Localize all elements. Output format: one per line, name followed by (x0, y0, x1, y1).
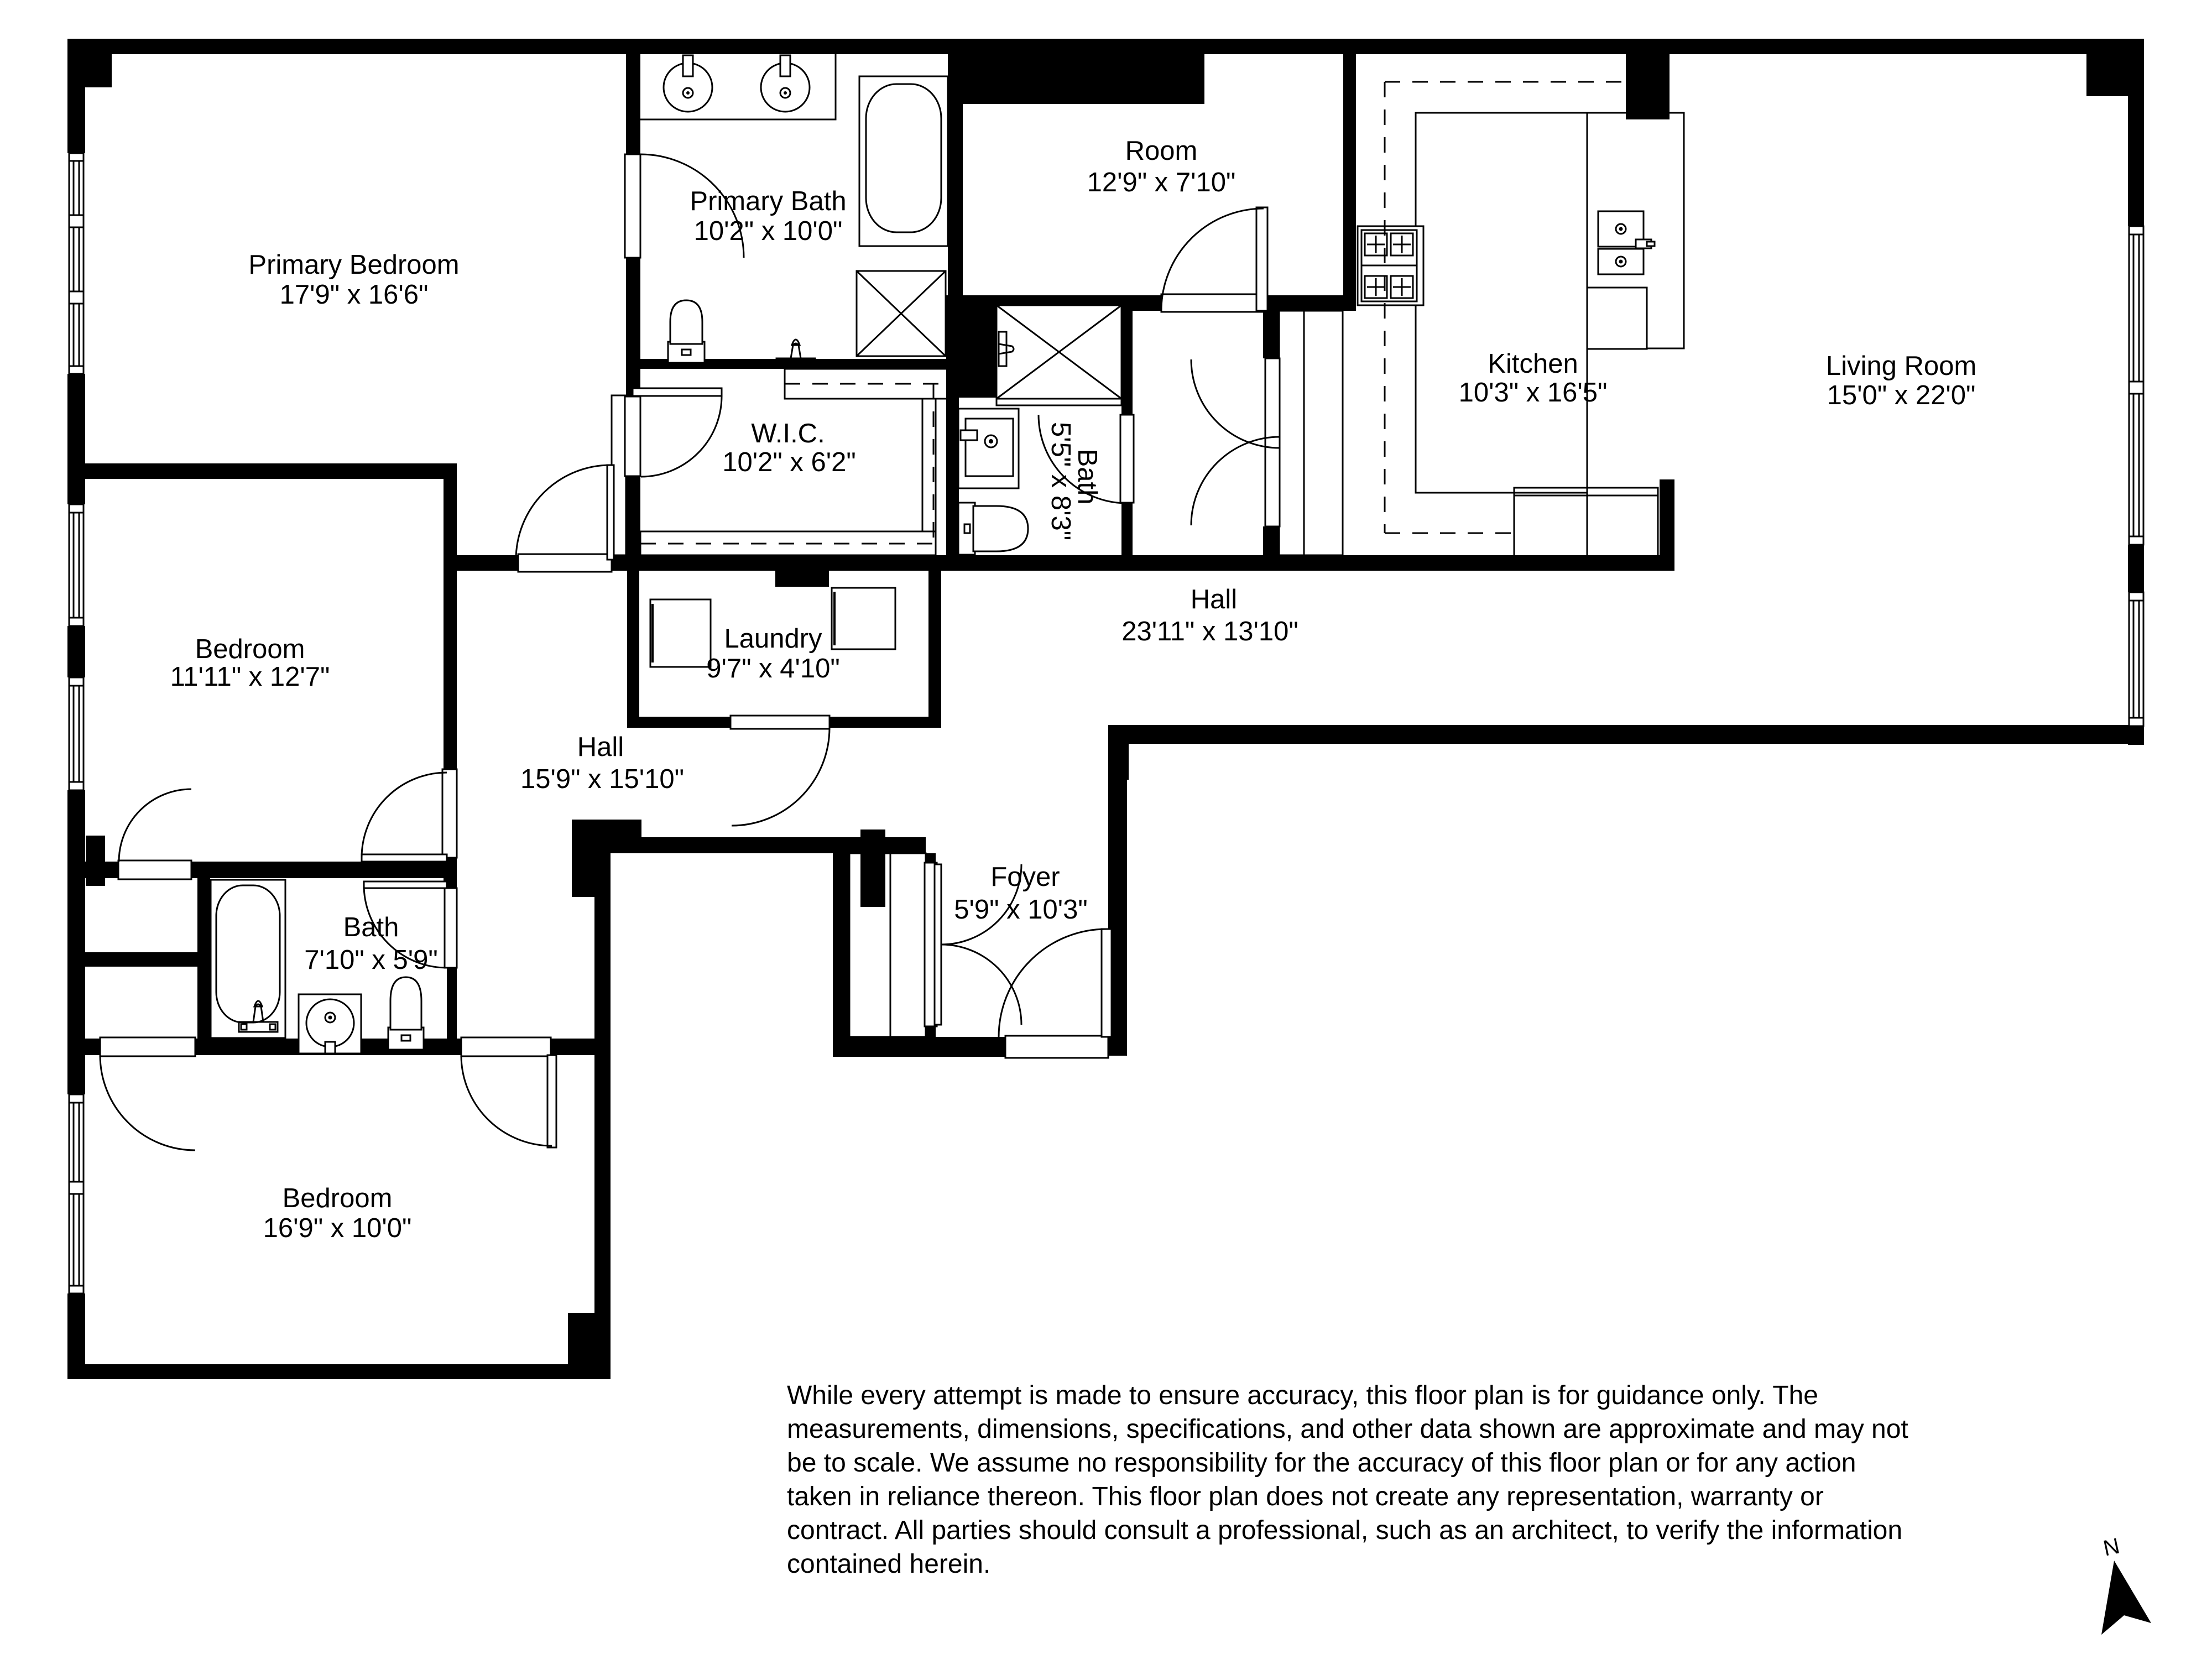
svg-text:Hall: Hall (1191, 585, 1237, 614)
svg-text:Bath: Bath (343, 912, 399, 942)
svg-text:16'9" x 10'0": 16'9" x 10'0" (263, 1213, 412, 1243)
svg-text:be to scale. We assume no resp: be to scale. We assume no responsibility… (787, 1448, 1856, 1478)
svg-text:Living Room: Living Room (1826, 351, 1976, 381)
svg-text:Room: Room (1125, 136, 1198, 166)
svg-text:12'9" x 7'10": 12'9" x 7'10" (1087, 168, 1236, 197)
svg-text:contained herein.: contained herein. (787, 1550, 990, 1579)
svg-text:Bath: Bath (1072, 449, 1102, 505)
svg-text:Bedroom: Bedroom (195, 634, 305, 664)
svg-text:9'7" x 4'10": 9'7" x 4'10" (706, 654, 839, 684)
svg-text:Hall: Hall (577, 732, 624, 762)
svg-text:Bedroom: Bedroom (283, 1183, 393, 1213)
svg-text:contract. All parties should c: contract. All parties should consult a p… (787, 1516, 1902, 1545)
svg-text:W.I.C.: W.I.C. (751, 419, 825, 448)
svg-text:Primary Bedroom: Primary Bedroom (248, 250, 459, 280)
svg-text:5'5" x 8'3": 5'5" x 8'3" (1046, 422, 1076, 540)
svg-text:Primary Bath: Primary Bath (690, 186, 846, 216)
svg-text:taken in reliance thereon. Thi: taken in reliance thereon. This floor pl… (787, 1482, 1824, 1511)
svg-text:10'2" x 6'2": 10'2" x 6'2" (722, 447, 855, 477)
svg-text:10'2" x 10'0": 10'2" x 10'0" (694, 216, 843, 246)
svg-text:Laundry: Laundry (724, 624, 822, 654)
svg-text:10'3" x 16'5": 10'3" x 16'5" (1459, 378, 1608, 408)
svg-text:17'9" x 16'6": 17'9" x 16'6" (280, 280, 429, 310)
svg-text:7'10" x 5'9": 7'10" x 5'9" (304, 945, 437, 975)
svg-text:5'9" x 10'3": 5'9" x 10'3" (954, 895, 1087, 925)
svg-text:23'11" x 13'10": 23'11" x 13'10" (1121, 617, 1298, 646)
svg-text:Kitchen: Kitchen (1488, 349, 1578, 379)
svg-text:11'11" x 12'7": 11'11" x 12'7" (170, 662, 330, 692)
svg-text:While every attempt is made to: While every attempt is made to ensure ac… (787, 1381, 1818, 1410)
svg-text:15'0" x 22'0": 15'0" x 22'0" (1827, 380, 1976, 410)
svg-text:Foyer: Foyer (990, 862, 1060, 892)
svg-text:15'9" x 15'10": 15'9" x 15'10" (520, 764, 684, 794)
svg-text:measurements, dimensions, spec: measurements, dimensions, specifications… (787, 1415, 1908, 1444)
